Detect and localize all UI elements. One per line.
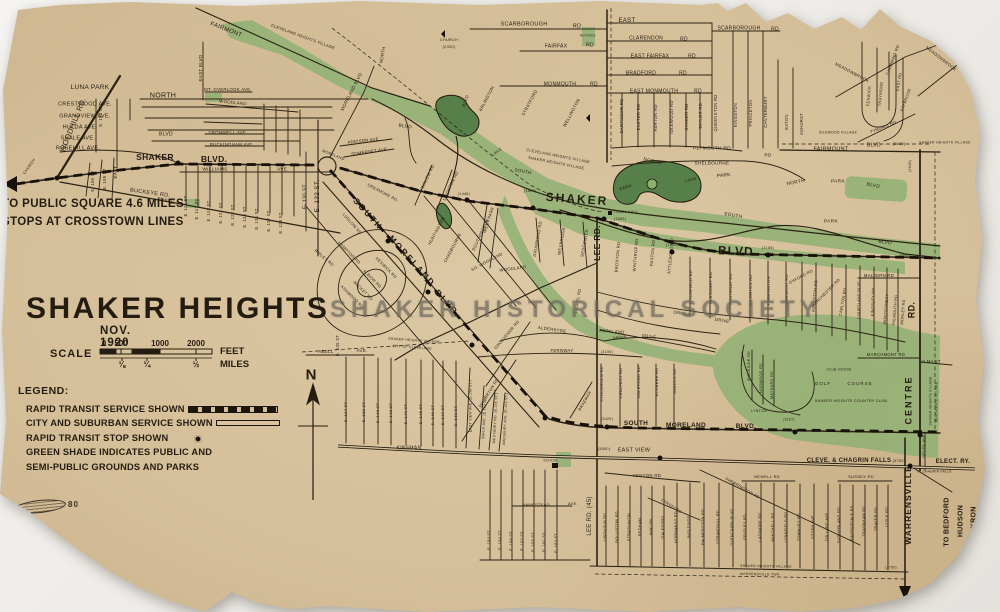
map-label: E. 103 ST (99, 105, 103, 126)
map-label: SCHOOL (543, 459, 558, 462)
map-label: LYNNFIELD RD (785, 512, 789, 543)
map-label: HAMPSTEAD (522, 503, 550, 507)
map-label: AKRON (971, 506, 978, 533)
map-label: GRIDLEY RD (744, 514, 748, 540)
map-label: LATIMORE RD (759, 513, 763, 542)
map-label: RAVENSDALE RD (851, 505, 855, 541)
map-label: EAST VIEW (618, 448, 651, 454)
public-square-note: TO PUBLIC SQUARE 4.6 MILES STOPS AT CROS… (2, 196, 184, 232)
map-label: QUEENSTON RD (714, 94, 718, 131)
map-label: LINDH0LM RD (604, 513, 608, 542)
map-label: HELEN AVE (923, 434, 927, 458)
map-label: FAIRFAX (545, 45, 568, 50)
map-label: RD (694, 90, 702, 95)
map-label: E. 106 ST (91, 170, 95, 191)
map-label: LYTLE RD (886, 507, 890, 527)
watermark: SHAKER HISTORICAL SOCIETY (330, 296, 821, 324)
scale-tick: ¼ (144, 360, 151, 369)
map-label: (1445) (458, 193, 470, 197)
note-line-1: TO PUBLIC SQUARE 4.6 MILES (2, 196, 184, 214)
map-label: E. 126 ST (255, 208, 259, 229)
scale-miles-unit: MILES (220, 359, 249, 370)
map-title: SHAKER HEIGHTS (26, 292, 329, 326)
west-arrow (3, 176, 17, 192)
map-label: AVE. (356, 349, 367, 354)
map-label: E. 130 ST. (304, 183, 309, 209)
map-label: LYNTON (751, 410, 767, 414)
map-label: E. 128 ST (279, 212, 283, 233)
map-label: E. 142 ST (389, 403, 393, 424)
map-label: RD. (908, 302, 917, 318)
map-label: EAST MONMOUTH (630, 90, 678, 95)
transit-stop-dot (766, 253, 771, 258)
south-arrow (899, 586, 911, 600)
map-label: DALEFORD (662, 515, 666, 538)
map-label: SUSSEX RD (848, 475, 874, 479)
map-label: E. 146 ST (431, 405, 435, 426)
map-label: ABELL (318, 350, 334, 355)
note-line-2: STOPS AT CROSSTOWN LINES (2, 214, 184, 232)
map-label: CHALFANT RD (619, 367, 623, 398)
map-label: WARRENSVILLE (904, 465, 913, 545)
map-label: E. 153 ST (488, 530, 492, 550)
map-label: (2680) (893, 143, 906, 147)
transit-stop-dot (470, 343, 475, 348)
transit-stop-dot (670, 250, 675, 255)
map-label: E. 116 ST (184, 195, 188, 216)
map-label: BLVD (867, 144, 881, 149)
map-label: (3420) (601, 418, 613, 422)
map-label: AVALON RD (673, 368, 677, 393)
map-label: IDLEWOOD RD (670, 100, 674, 133)
map-label: LUNA PARK (71, 85, 110, 92)
printer-stamp: 80 (14, 498, 84, 514)
transit-stop-dot (543, 416, 548, 421)
map-label: KENYON RD (633, 474, 661, 478)
map-label: E. 119 ST (207, 200, 211, 221)
map-label: (2640) (909, 160, 913, 172)
map-label: (3150) (601, 351, 613, 355)
map-label: SUTHERLAND RD (838, 507, 842, 543)
map-label: EAST FAIRFAX (631, 55, 670, 60)
map-label: ELECT. RY. (936, 459, 970, 465)
map-label: STOER AVE (812, 515, 816, 539)
map-label: (1800) (614, 218, 626, 222)
map-label: ASHTON RD (654, 104, 658, 131)
map-label: DALEFORD RD (637, 366, 641, 398)
transit-stop-dot (176, 161, 181, 166)
legend-item: RAPID TRANSIT SERVICE SHOWN (18, 404, 318, 418)
map-label: (1600) (524, 190, 536, 194)
map-label: GLENCAIRN BLVD (731, 508, 735, 545)
map-label: E. 117 ST (195, 198, 199, 219)
map-label: SHAKER (136, 153, 174, 162)
legend-item-label: CITY AND SUBURBAN SERVICE SHOWN (26, 418, 213, 428)
map-label: AVALON (650, 519, 654, 536)
map-label: CROMWELL AVE. (209, 131, 248, 135)
map-label: WILLIAMS (202, 169, 227, 174)
map-label: MARCHMONT RD (867, 353, 905, 357)
map-label: EATON (785, 114, 789, 130)
map-label: E. 143 ST (404, 404, 408, 425)
map-label: CLEVE. & CHAGRIN FALLS (807, 458, 892, 464)
map-label: TO CHAGRIN FALLS (916, 470, 951, 473)
map-label: MALVERN RD (864, 274, 894, 278)
transit-stop-dot (793, 430, 798, 435)
map-label: E. 154 ST (499, 530, 503, 550)
map-label: (2400) (443, 46, 456, 50)
map-label: WINCHELL RD (772, 512, 776, 541)
map-label: RD (764, 154, 771, 159)
map-label: TAYLOR RD (699, 103, 703, 129)
map-label: NORWOOD RD (760, 363, 764, 393)
scale-tick: 0 (102, 339, 106, 348)
map-label: (3500) (598, 448, 611, 452)
map-label: EAST BLVD (199, 54, 204, 81)
map-label: E. 109 ST (103, 168, 107, 189)
map-label: RD (680, 38, 688, 43)
map-label: (3750) (885, 566, 897, 569)
map-label: INGLESIDE RD (748, 351, 752, 381)
legend-item-label: GREEN SHADE INDICATES PUBLIC AND (26, 447, 212, 457)
map-label: KINGSTON (734, 103, 738, 127)
map-label: RD (586, 44, 594, 49)
legend-item: CITY AND SUBURBAN SERVICE SHOWN (18, 418, 318, 432)
transit-stop-dot (602, 217, 607, 222)
map-label: NORMANDY RD (675, 511, 679, 543)
map-label: TOLLAND AVE (826, 513, 830, 542)
map-label: PLYMOUTH RD (693, 148, 731, 153)
map-label: STRANDHILL RD (717, 510, 721, 544)
map-label: ALMA ST (921, 360, 941, 364)
lake-island (647, 179, 657, 189)
map-label: SHAKER HEIGHTS VILLAGE (919, 141, 971, 144)
map-paper-shadow: TO PUBLIC SQUARE 4.6 MILES STOPS AT CROS… (0, 0, 1000, 612)
map-label: E. 156 ST (510, 531, 514, 551)
map-label: E. 147 ST (441, 405, 445, 426)
map-label: E. 140 ST (376, 403, 380, 424)
map-label: E. 159 ST (532, 532, 536, 552)
legend-item-label: SEMI-PUBLIC GROUNDS AND PARKS (26, 462, 199, 472)
map-label: TRAYNHAM RD (863, 506, 867, 537)
map-label: EAST (114, 166, 119, 179)
map-label: EXETER RD (637, 104, 641, 131)
printer-stamp-number: 80 (68, 500, 79, 509)
transit-stop-dot (386, 239, 391, 244)
map-label: RD (590, 83, 598, 88)
map-label: SHAKER HEIGHTS COUNTRY CLUB (815, 400, 888, 404)
map-label: EAST VIEW AVE. (E.158 ST.) (469, 380, 472, 432)
map-label: LEE RD. (45) (587, 496, 593, 535)
legend-item: SEMI-PUBLIC GROUNDS AND PARKS (18, 462, 318, 476)
map-label: AVE. (568, 502, 578, 506)
transit-stop-dot (918, 433, 923, 438)
map-label: SCHOOL (580, 34, 597, 38)
map-label: BLVD. (201, 155, 227, 164)
map-label: E. 137 ST (344, 402, 348, 423)
map-label: ELSMERE RD (655, 367, 659, 396)
legend-symbol-dot (194, 435, 202, 443)
map-stage: TO PUBLIC SQUARE 4.6 MILES STOPS AT CROS… (0, 0, 1000, 612)
map-label: BUCKINGHAM AVE. (210, 143, 254, 147)
legend-heading: LEGEND: (18, 385, 318, 397)
map-label: FERNWAY (550, 349, 573, 353)
scale-tick: 500 (114, 339, 127, 348)
transit-stop-dot (426, 290, 431, 295)
map-label: KINSMAN (397, 447, 422, 452)
map-label: E. 145 ST (419, 404, 423, 425)
map-label: CANTERBURY (764, 96, 768, 128)
map-label: SCARBOROUGH (717, 27, 760, 32)
map-label: CLUB HOUSE (826, 368, 851, 371)
map-label: E. 139 ST (362, 402, 366, 423)
legend-symbol-hollow (216, 420, 280, 426)
scale-tick: ⅛ (119, 360, 126, 369)
map-label: TOWNLEY RD (798, 513, 802, 541)
map-label: AVE. (277, 169, 289, 174)
map-label: DARTMOOR RD (620, 99, 624, 134)
map-label: E. 127 ST (267, 210, 271, 231)
map-label: (2600) (899, 255, 912, 259)
map-label: E. 149 ST (454, 406, 458, 427)
transit-stop-dot (531, 206, 536, 211)
map-label: NEWELL RD (754, 475, 780, 479)
map-label: ASHURST (800, 113, 804, 135)
map-label: E. 124 ST (243, 206, 247, 227)
map-label: NORTH (150, 93, 176, 100)
map-label: TOWN HALL (614, 211, 639, 215)
map-label: BEACHWOOD VILLAGE (935, 382, 938, 423)
map-label: E. 132 ST. (315, 180, 322, 213)
map-label: COURTLAND BLVD (858, 281, 862, 319)
map-label: GOLF (815, 382, 831, 387)
map-label: PARK (831, 181, 845, 186)
map-label: E. 121 ST (219, 202, 223, 223)
legend-item: RAPID TRANSIT STOP SHOWN (18, 433, 318, 447)
transit-stop-dot (908, 464, 913, 469)
map-label: STRATHAVON (628, 513, 632, 541)
map-label: FAIRMOUNT (813, 147, 848, 153)
map-label: E. 163 ST (555, 533, 559, 553)
scale-label: SCALE (50, 348, 92, 360)
map-label: (3700) (893, 460, 906, 464)
map-label: (3187) (783, 418, 795, 421)
map-label: IDLEWOOD VILLAGE (819, 131, 857, 134)
map-label: REDHAM (639, 518, 643, 536)
map-label: MT. OVERLOOK AVE. (204, 88, 252, 92)
map-paper: TO PUBLIC SQUARE 4.6 MILES STOPS AT CROS… (0, 0, 1000, 612)
map-label: RD (771, 28, 779, 33)
scale-tick: ½ (193, 360, 200, 369)
map-label: (2165) (762, 247, 774, 251)
compass-north-label: N (306, 367, 317, 384)
map-label: TO BEDFORD (944, 497, 951, 546)
scale-tick: 1000 (151, 339, 169, 348)
map-label: SHAKER HEIGHTS VILLAGE (929, 377, 932, 426)
legend-rows: RAPID TRANSIT SERVICE SHOWNCITY AND SUBU… (18, 404, 318, 476)
map-label: MAYNARD RD (771, 371, 775, 399)
map-label: CHURCH (440, 39, 458, 43)
map-label: PARK (824, 221, 838, 226)
map-label: CENTRE (905, 375, 914, 424)
map-label: SCARBOROUGH (501, 22, 548, 28)
map-label: RD (573, 24, 582, 30)
map-label: BLVD (159, 133, 173, 138)
map-label: PALMERSTON RD (702, 509, 706, 545)
map-label: MONMOUTH (544, 83, 576, 88)
map-label: BLVD. (736, 424, 757, 431)
map-label: MORELAND (666, 423, 706, 430)
map-label: TRAVER RD (875, 507, 879, 531)
legend-item-label: RAPID TRANSIT SERVICE SHOWN (26, 404, 185, 414)
legend-symbol-dash (188, 406, 278, 413)
transit-stop-dot (658, 456, 663, 461)
map-label: ROLLISTON RD (616, 511, 620, 543)
map-label: SHELBOURNE (695, 162, 730, 167)
transit-stop-dot (605, 425, 610, 430)
printer-stamp-oval-icon (13, 497, 66, 515)
map-label: PRINCETON (749, 99, 753, 126)
map-label: SHAKER RD (685, 103, 689, 130)
legend-item-label: RAPID TRANSIT STOP SHOWN (26, 433, 168, 443)
map-label: RD (688, 55, 696, 60)
map-label: SOUTH (624, 421, 648, 428)
map-label: E. 157 ST (521, 531, 525, 551)
map-label: RD (679, 72, 687, 77)
scale-tick: 2000 (187, 339, 205, 348)
map-label: E. 135 ST. (336, 334, 340, 356)
legend: LEGEND: RAPID TRANSIT SERVICE SHOWNCITY … (18, 385, 318, 476)
map-label: INGLESIDE (688, 516, 692, 539)
legend-item: GREEN SHADE INDICATES PUBLIC AND (18, 447, 318, 461)
map-label: STOCKHOLM RD (600, 366, 604, 402)
map-label: COURSE (847, 382, 872, 387)
map-label: BRADFORD (626, 72, 656, 77)
map-label: HUDSON (958, 505, 965, 537)
map-label: CLARENDON (629, 37, 663, 42)
map-label: E. 122 ST (231, 204, 235, 225)
map-label: EAST (619, 18, 636, 24)
transit-stop-dot (55, 176, 60, 181)
scale-feet-unit: FEET (220, 346, 244, 357)
transit-stop-dot (465, 198, 470, 203)
map-label: LEE RD. (593, 225, 602, 261)
map-label: E. 161 ST (543, 532, 547, 552)
map-label: WARRENSVILLE TWP. (740, 573, 781, 577)
map-label: BLVD. (718, 244, 759, 257)
